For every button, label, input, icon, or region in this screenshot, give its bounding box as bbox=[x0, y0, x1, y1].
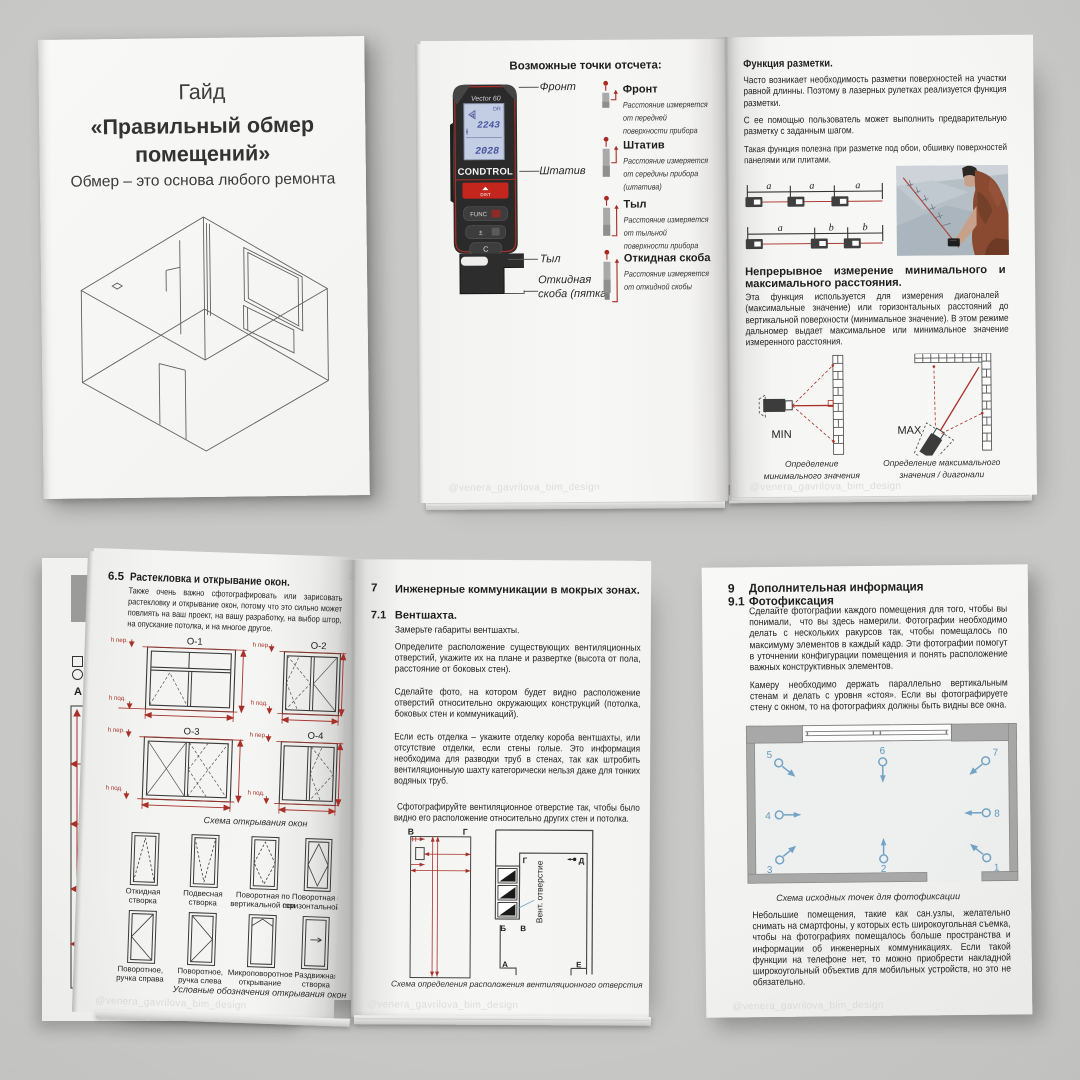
svg-text:В: В bbox=[520, 924, 526, 933]
svg-text:Е: Е bbox=[576, 960, 582, 969]
svg-text:О-1: О-1 bbox=[187, 636, 203, 648]
svg-text:В: В bbox=[408, 827, 414, 837]
svg-text:3: 3 bbox=[767, 865, 773, 876]
svg-text:a: a bbox=[855, 180, 860, 191]
svg-text:b: b bbox=[829, 222, 834, 233]
svg-text:Вент. отверстие: Вент. отверстие bbox=[534, 860, 544, 923]
svg-text:О-2: О-2 bbox=[311, 641, 327, 653]
svg-text:О-3: О-3 bbox=[183, 726, 199, 738]
svg-text:h пер.: h пер. bbox=[249, 732, 267, 740]
svg-text:h под.: h под. bbox=[247, 790, 265, 798]
svg-text:створка: створка bbox=[188, 898, 217, 908]
svg-text:горизонтальной оси: горизонтальной оси bbox=[282, 901, 340, 913]
svg-text:5: 5 bbox=[767, 750, 773, 761]
svg-text:6: 6 bbox=[880, 746, 886, 757]
svg-text:h под.: h под. bbox=[251, 700, 269, 708]
svg-text:ручка справа: ручка справа bbox=[116, 973, 164, 984]
svg-text:2: 2 bbox=[881, 864, 887, 875]
svg-text:h пер.: h пер. bbox=[253, 642, 271, 650]
svg-text:a: a bbox=[766, 181, 771, 192]
svg-text:А: А bbox=[502, 960, 508, 969]
svg-text:h под.: h под. bbox=[109, 695, 127, 703]
svg-text:створка: створка bbox=[129, 895, 158, 905]
svg-text:h под.: h под. bbox=[106, 785, 124, 793]
svg-text:1: 1 bbox=[994, 863, 1000, 874]
svg-text:MAX: MAX bbox=[897, 425, 922, 437]
svg-text:7: 7 bbox=[993, 748, 999, 759]
svg-text:a: a bbox=[778, 223, 783, 234]
svg-text:8: 8 bbox=[994, 809, 1000, 820]
svg-text:Д: Д bbox=[579, 856, 585, 865]
svg-text:Б: Б bbox=[500, 924, 506, 933]
svg-text:Г: Г bbox=[523, 856, 528, 865]
svg-text:4: 4 bbox=[765, 811, 771, 822]
svg-text:О-4: О-4 bbox=[307, 731, 323, 743]
svg-text:h пер.: h пер. bbox=[111, 637, 129, 645]
svg-text:MIN: MIN bbox=[771, 429, 791, 441]
svg-text:b: b bbox=[863, 222, 868, 233]
svg-text:a: a bbox=[809, 181, 814, 192]
svg-text:Г: Г bbox=[463, 827, 468, 837]
svg-text:h пер.: h пер. bbox=[108, 727, 126, 735]
